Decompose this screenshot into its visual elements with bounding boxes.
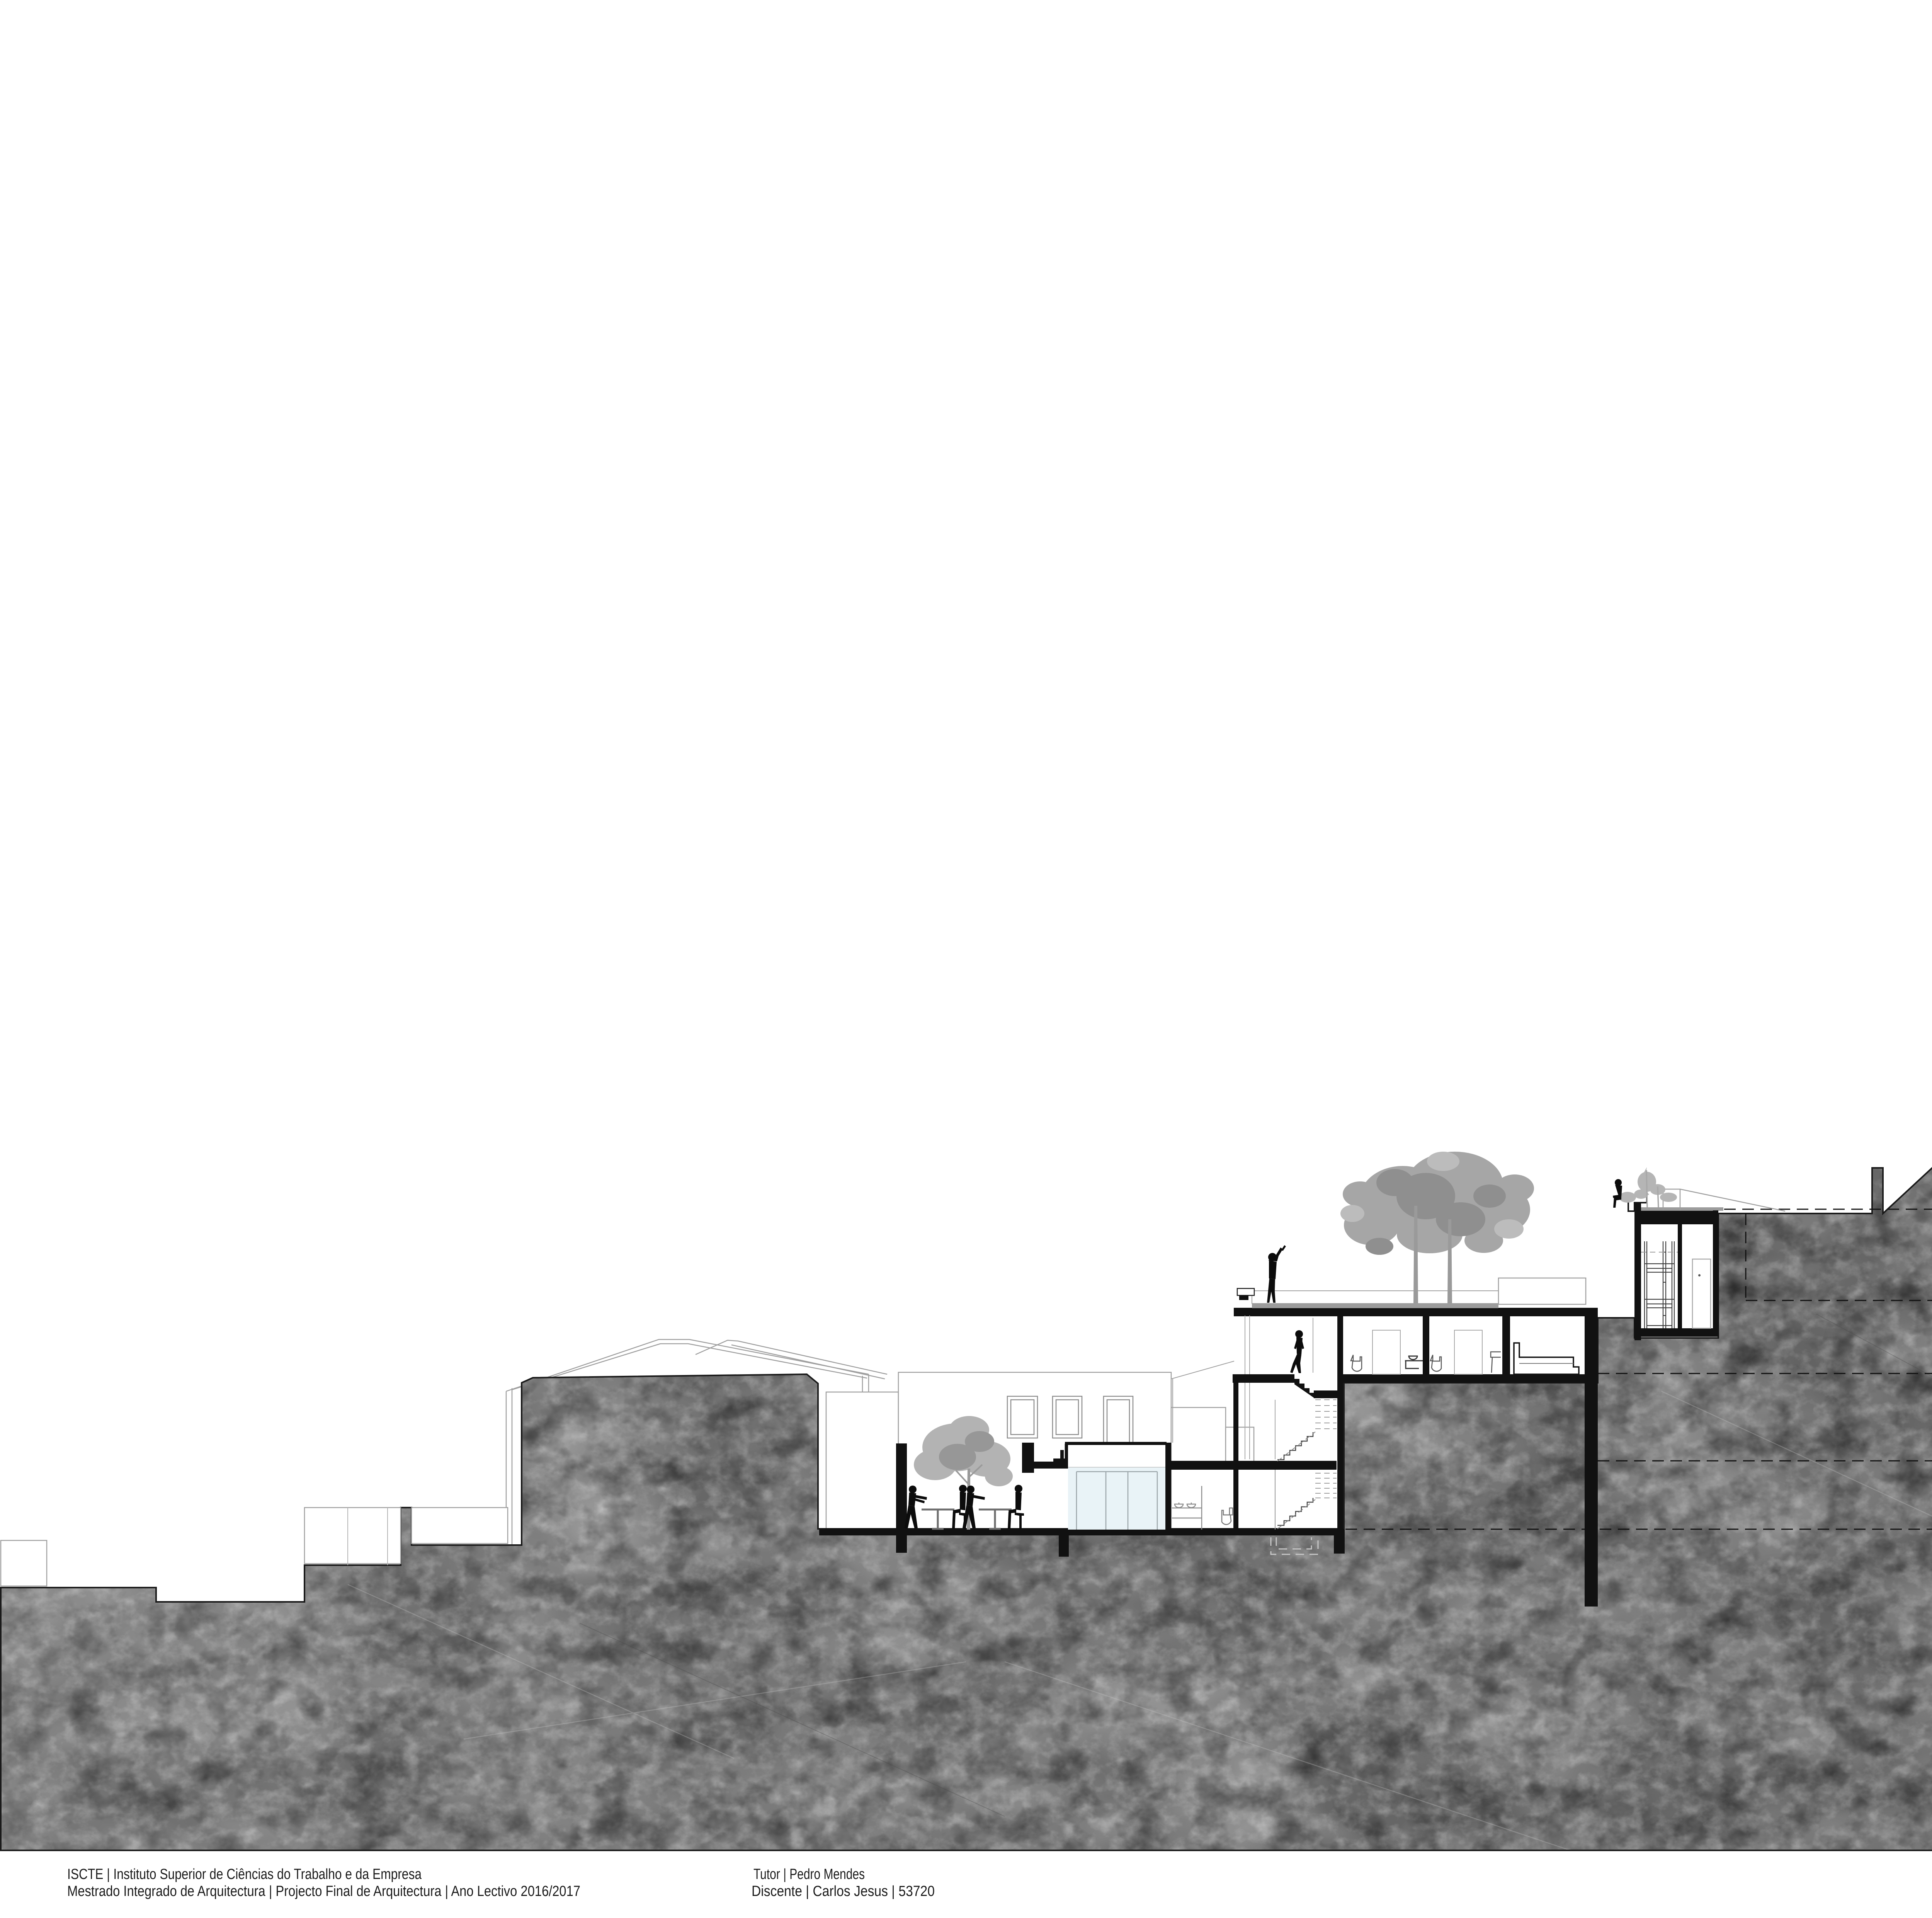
svg-text:ISCTE | Instituto Superior d: ISCTE | Instituto Superior de Ciências d…	[67, 1866, 422, 1882]
svg-text:Tutor | Pedro Mendes: Tutor | Pedro Mendes	[753, 1866, 865, 1882]
svg-text:Discente | Carlos Jesus |: Discente | Carlos Jesus | 53720	[752, 1883, 935, 1899]
svg-text:Mestrado Integrado de Arquitec: Mestrado Integrado de Arquitectura | Pro…	[67, 1883, 580, 1899]
